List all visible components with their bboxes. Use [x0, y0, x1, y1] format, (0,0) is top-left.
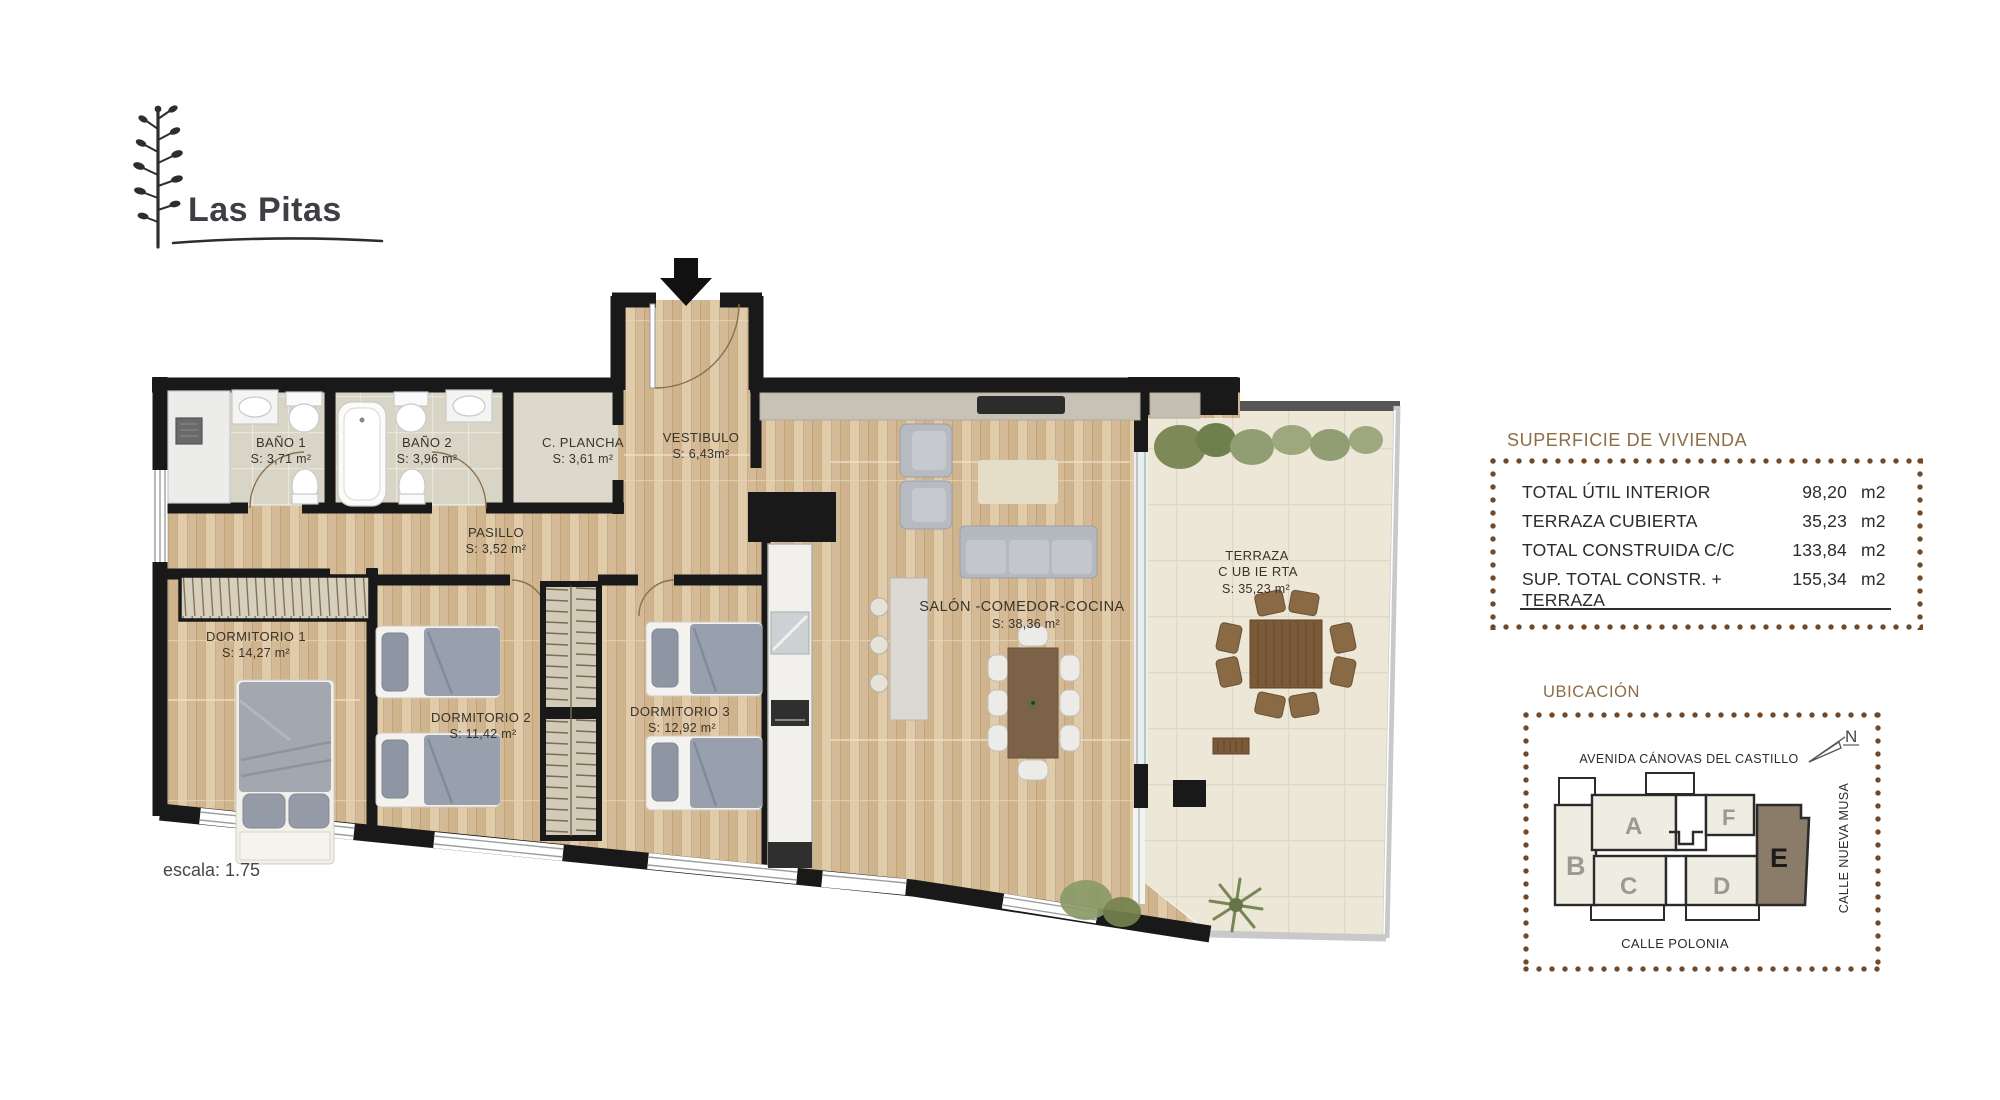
- room-area: S: 38,36 m²: [992, 617, 1060, 631]
- surface-panel: TOTAL ÚTIL INTERIOR 98,20 m2 TERRAZA CUB…: [1490, 458, 1923, 630]
- row-label: TOTAL ÚTIL INTERIOR: [1512, 482, 1773, 503]
- room-label: BAÑO 2: [402, 435, 452, 450]
- north-label: N: [1845, 727, 1857, 746]
- row-unit: m2: [1847, 540, 1907, 561]
- room-label: C UB IE RTA: [1218, 564, 1298, 579]
- brand-logo: Las Pitas: [110, 95, 390, 255]
- room-area: S: 14,27 m²: [222, 646, 290, 660]
- building-minimap: B A F C D E: [1551, 772, 1821, 930]
- street-name-right: CALLE NUEVA MUSA: [1837, 768, 1853, 928]
- row-label: TOTAL CONSTRUIDA C/C: [1512, 540, 1773, 561]
- dotted-border-left: [1490, 458, 1496, 630]
- room-area: S: 6,43m²: [673, 447, 730, 461]
- room-area: S: 3,71 m²: [251, 452, 312, 466]
- table-row: TERRAZA CUBIERTA 35,23 m2: [1512, 511, 1907, 540]
- brand-name: Las Pitas: [188, 191, 342, 230]
- row-value: 35,23: [1773, 511, 1847, 532]
- location-panel-title: UBICACIÓN: [1543, 683, 1640, 702]
- room-label: TERRAZA: [1225, 548, 1288, 563]
- room-area: S: 12,92 m²: [648, 721, 716, 735]
- dotted-border-left: [1523, 712, 1529, 972]
- sofa: [960, 526, 1097, 578]
- table-row: SUP. TOTAL CONSTR. + TERRAZA 155,34 m2: [1512, 569, 1907, 598]
- entry-floor: [618, 300, 756, 390]
- room-area: S: 3,61 m²: [553, 452, 614, 466]
- room-label: C. PLANCHA: [542, 435, 624, 450]
- dotted-border-right: [1875, 712, 1881, 972]
- row-unit: m2: [1847, 569, 1907, 590]
- unit-label: F: [1722, 805, 1735, 830]
- unit-label: A: [1625, 813, 1642, 840]
- row-value: 155,34: [1773, 569, 1847, 590]
- row-value: 98,20: [1773, 482, 1847, 503]
- dotted-border-bottom: [1490, 624, 1923, 630]
- room-area: S: 3,52 m²: [466, 542, 527, 556]
- row-value: 133,84: [1773, 540, 1847, 561]
- room-area: S: 11,42 m²: [450, 727, 517, 741]
- dotted-border-bottom: [1523, 966, 1881, 972]
- room-area: S: 3,96 m²: [397, 452, 458, 466]
- surface-table: TOTAL ÚTIL INTERIOR 98,20 m2 TERRAZA CUB…: [1512, 482, 1907, 598]
- room-label: VESTIBULO: [663, 430, 740, 445]
- room-label: DORMITORIO 1: [206, 629, 306, 644]
- rug: [978, 460, 1058, 504]
- table-row: TOTAL ÚTIL INTERIOR 98,20 m2: [1512, 482, 1907, 511]
- table-row: TOTAL CONSTRUIDA C/C 133,84 m2: [1512, 540, 1907, 569]
- room-label: DORMITORIO 2: [431, 710, 531, 725]
- table-underline: [1520, 608, 1891, 610]
- unit-label: B: [1566, 851, 1586, 881]
- row-unit: m2: [1847, 511, 1907, 532]
- row-label: SUP. TOTAL CONSTR. + TERRAZA: [1512, 569, 1773, 611]
- room-label: DORMITORIO 3: [630, 704, 730, 719]
- room-label: PASILLO: [468, 525, 524, 540]
- unit-label: C: [1620, 873, 1637, 900]
- row-label: TERRAZA CUBIERTA: [1512, 511, 1773, 532]
- unit-label: D: [1713, 873, 1730, 900]
- surface-panel-title: SUPERFICIE DE VIVIENDA: [1507, 430, 1747, 451]
- scale-note: escala: 1.75: [163, 860, 260, 881]
- room-area: S: 35,23 m²: [1222, 582, 1290, 596]
- dotted-border-top: [1490, 458, 1923, 464]
- location-panel: N AVENIDA CÁNOVAS DEL CASTILLO CALLE NUE…: [1523, 712, 1881, 972]
- dotted-border-right: [1917, 458, 1923, 630]
- room-label: SALÓN -COMEDOR-COCINA: [919, 598, 1124, 615]
- street-name-bottom: CALLE POLONIA: [1553, 936, 1797, 951]
- room-label: BAÑO 1: [256, 435, 306, 450]
- dotted-border-top: [1523, 712, 1881, 718]
- armchairs: [900, 424, 952, 529]
- bed-double: [236, 680, 334, 864]
- entrance-arrow-icon: [660, 258, 712, 306]
- street-name-top: AVENIDA CÁNOVAS DEL CASTILLO: [1553, 752, 1825, 766]
- unit-label-highlighted: E: [1770, 843, 1788, 873]
- logo-underline: [170, 235, 386, 247]
- row-unit: m2: [1847, 482, 1907, 503]
